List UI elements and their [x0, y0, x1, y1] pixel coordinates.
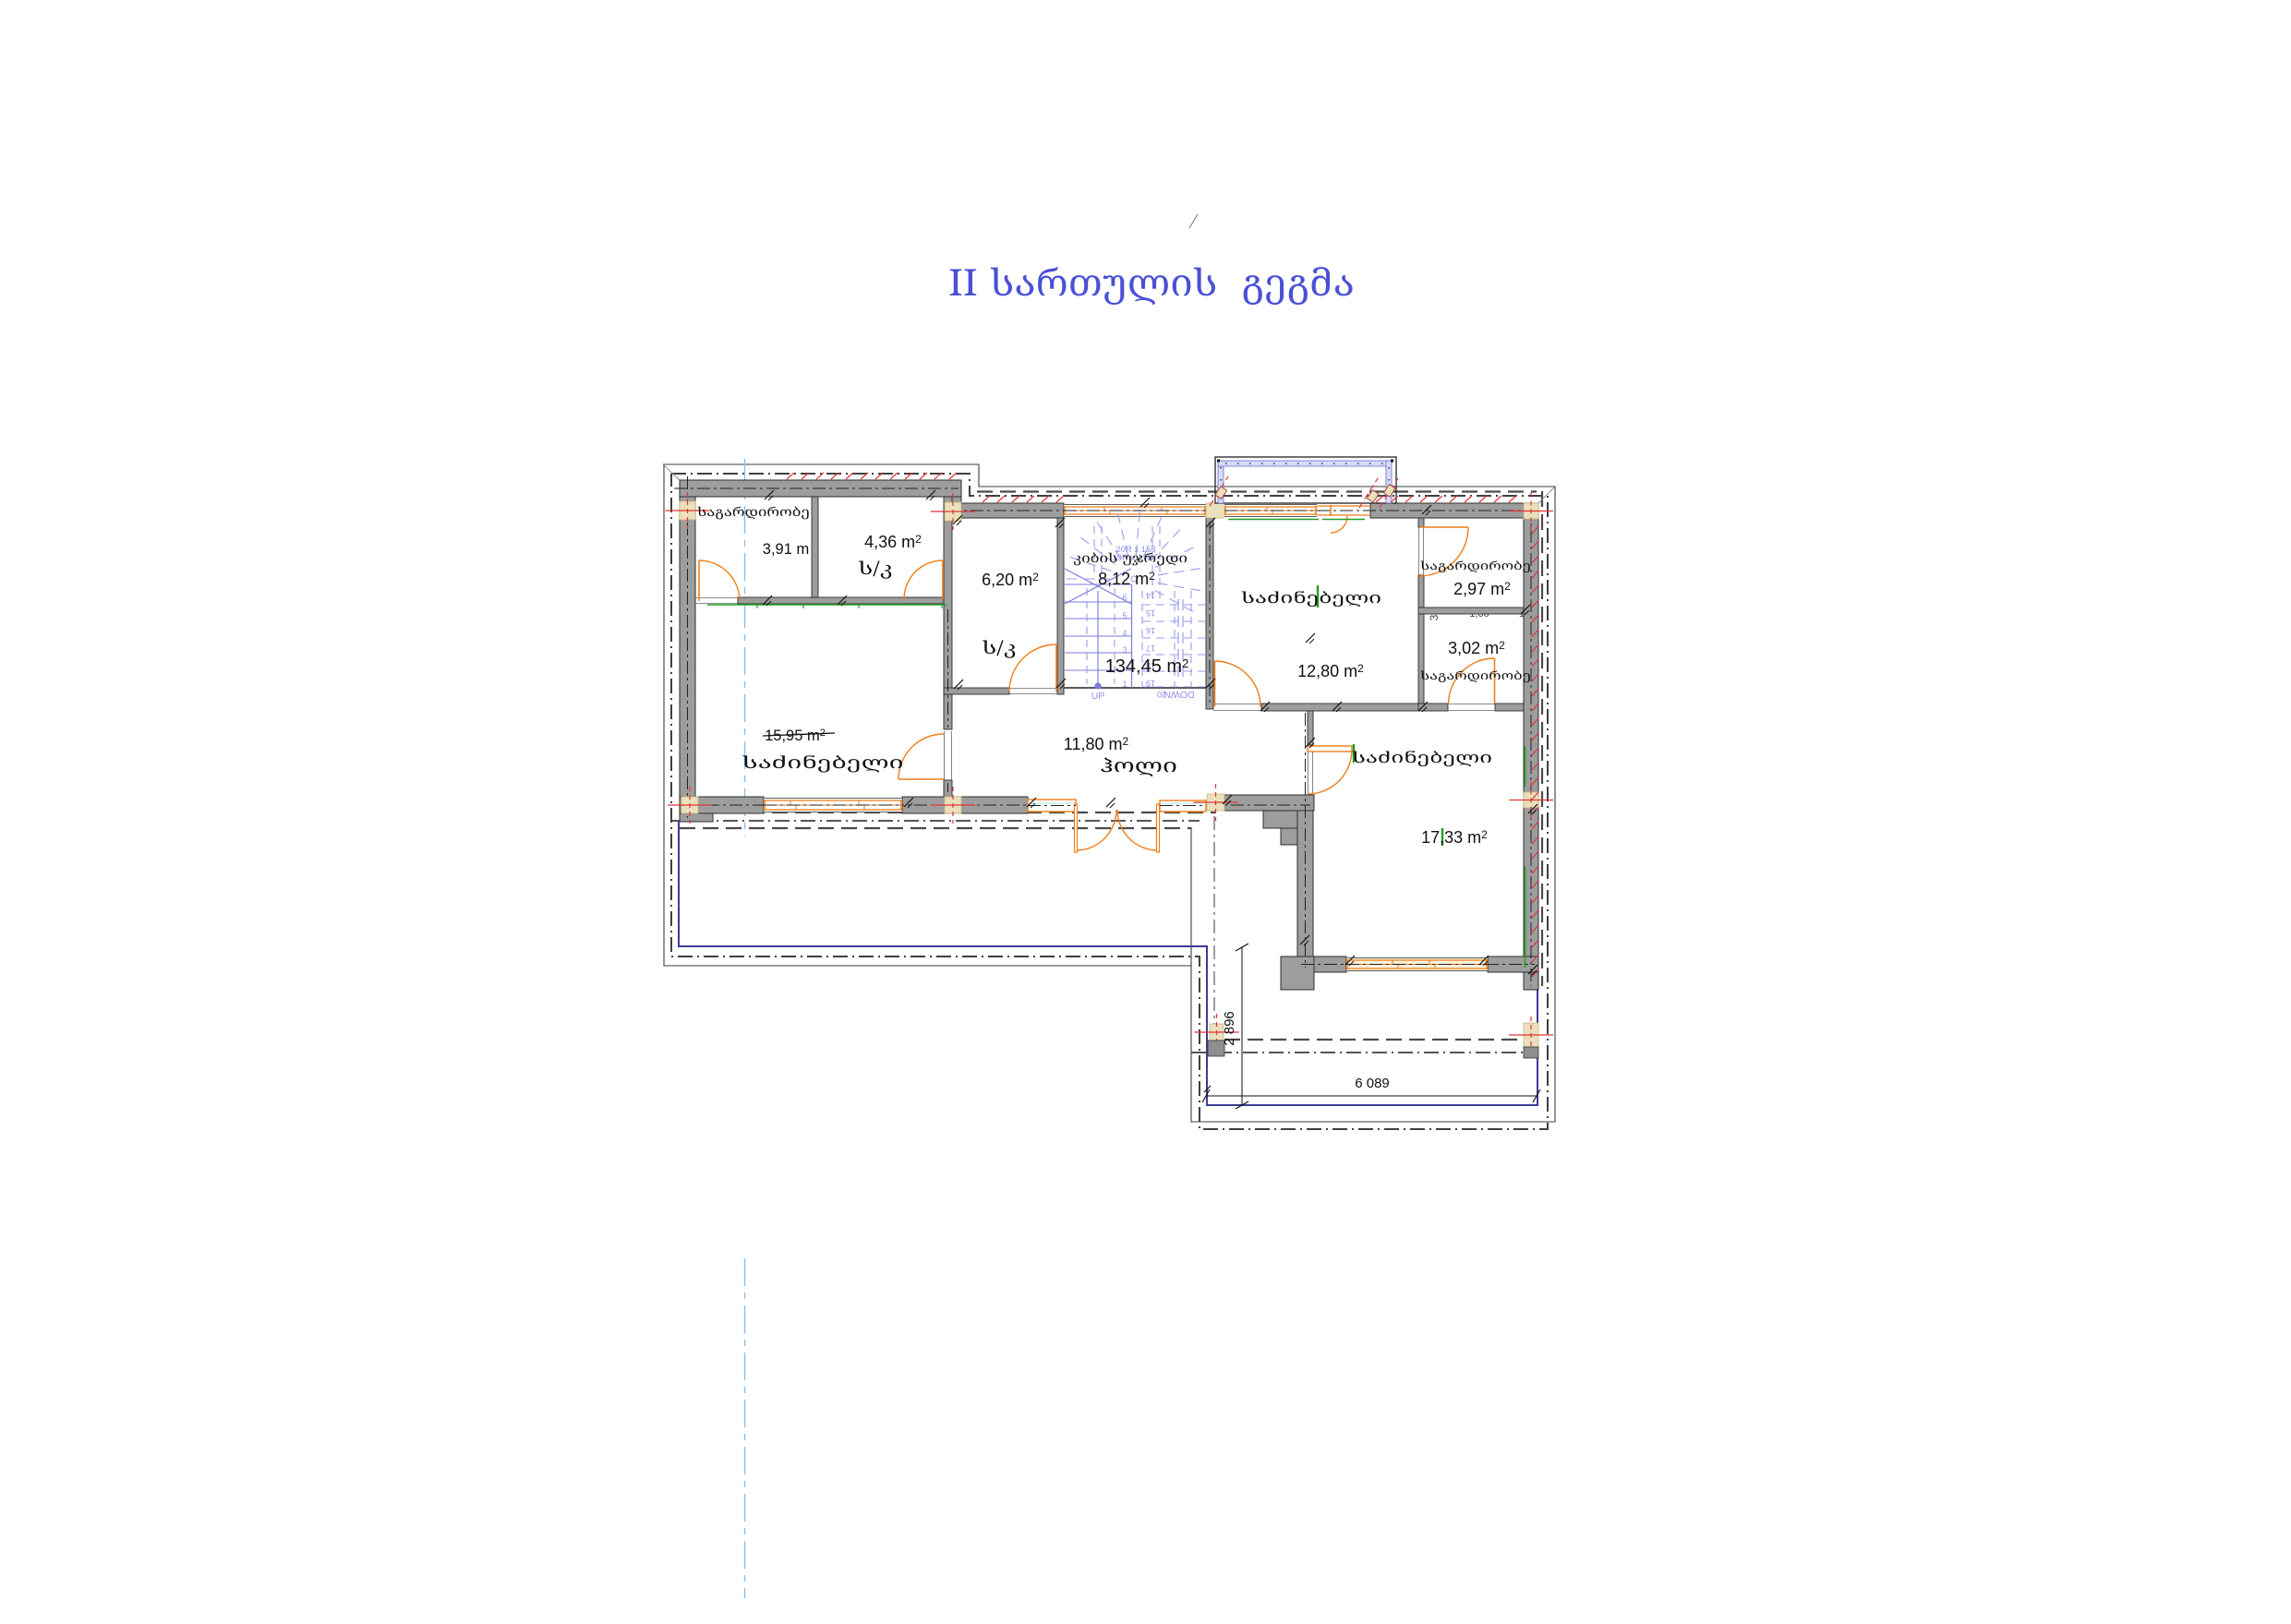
- svg-text:6,20 m2: 6,20 m2: [982, 571, 1039, 589]
- svg-text:1: 1: [1122, 680, 1127, 689]
- svg-text:3,91 m: 3,91 m: [763, 541, 809, 558]
- svg-text:6 089: 6 089: [1355, 1076, 1390, 1091]
- svg-text:3: 3: [1122, 645, 1127, 655]
- svg-text:3,02 m2: 3,02 m2: [1448, 639, 1505, 657]
- svg-text:19: 19: [1146, 679, 1155, 688]
- svg-text:3: 3: [1428, 614, 1441, 620]
- svg-text:2 896: 2 896: [1222, 1011, 1237, 1046]
- svg-text:14: 14: [1146, 591, 1155, 600]
- svg-text:4: 4: [1122, 629, 1127, 638]
- svg-text:17: 17: [1146, 644, 1155, 653]
- svg-text:15: 15: [1146, 608, 1155, 618]
- svg-text:134,45 m2: 134,45 m2: [1105, 656, 1189, 677]
- svg-text:17,33 m2: 17,33 m2: [1421, 828, 1488, 847]
- svg-text:11,80 m2: 11,80 m2: [1064, 735, 1129, 753]
- svg-text:6: 6: [1122, 593, 1127, 602]
- svg-text:UP: UP: [1091, 691, 1105, 702]
- svg-text:5: 5: [1122, 611, 1127, 620]
- svg-text:DOWN: DOWN: [1164, 689, 1194, 700]
- svg-text:12,80 m2: 12,80 m2: [1297, 662, 1364, 680]
- svg-text:16: 16: [1146, 626, 1155, 635]
- svg-text:2,97 m2: 2,97 m2: [1453, 580, 1511, 598]
- svg-text:4,36 m2: 4,36 m2: [864, 533, 922, 551]
- svg-text:8,12 m2: 8,12 m2: [1098, 570, 1155, 588]
